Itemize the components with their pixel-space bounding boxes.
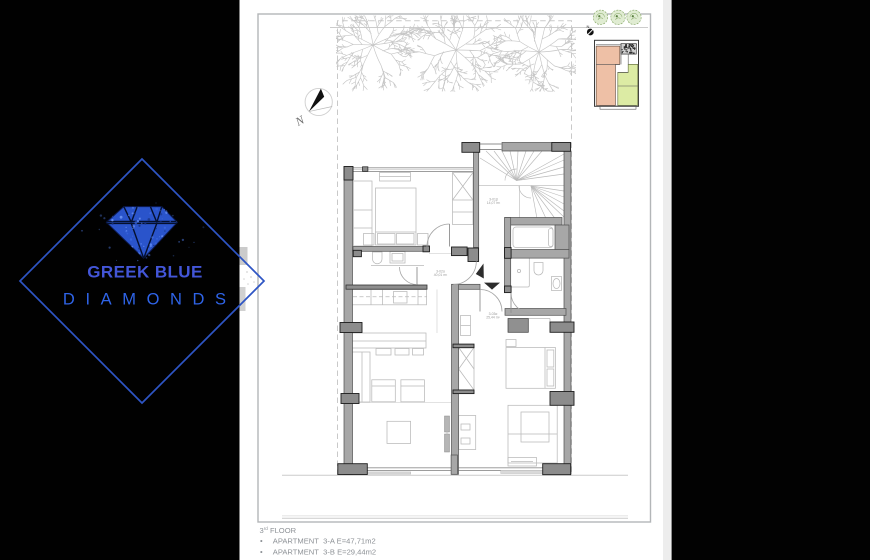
svg-text:GREEK BLUE: GREEK BLUE (87, 263, 202, 282)
svg-text:•: • (260, 548, 263, 557)
svg-text:APARTMENT 3-B E=29,44m2: APARTMENT 3-B E=29,44m2 (273, 548, 376, 557)
svg-text:14,07 m²: 14,07 m² (487, 201, 501, 205)
svg-text:N: N (587, 24, 590, 29)
svg-text:25,44 m²: 25,44 m² (486, 316, 500, 320)
svg-text:DIAMONDS: DIAMONDS (63, 291, 237, 309)
svg-text:40,01 m²: 40,01 m² (434, 273, 448, 277)
svg-text:APARTMENT 3-A E=47,71m2: APARTMENT 3-A E=47,71m2 (273, 537, 376, 546)
svg-text:•: • (260, 537, 263, 546)
svg-text:3rd FLOOR: 3rd FLOOR (260, 526, 297, 535)
